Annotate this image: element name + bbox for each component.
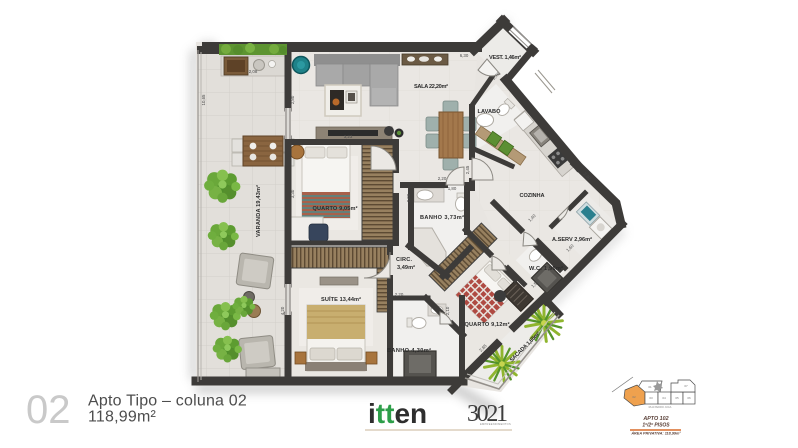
svg-text:BANHO 4,30m²: BANHO 4,30m² bbox=[387, 347, 431, 354]
svg-text:2,08: 2,08 bbox=[406, 193, 411, 202]
svg-text:VEST. 1,46m²: VEST. 1,46m² bbox=[489, 54, 521, 61]
svg-text:SALA 22,20m²: SALA 22,20m² bbox=[414, 83, 448, 90]
svg-text:2,10: 2,10 bbox=[445, 306, 450, 315]
svg-text:APTO 102: APTO 102 bbox=[642, 416, 668, 422]
svg-text:EMPREENDIMENTOS: EMPREENDIMENTOS bbox=[480, 422, 511, 426]
svg-text:VARANDA 19,43m²: VARANDA 19,43m² bbox=[255, 185, 262, 237]
svg-text:4,20: 4,20 bbox=[280, 306, 285, 315]
svg-text:CIRC.: CIRC. bbox=[396, 257, 412, 263]
svg-text:03: 03 bbox=[649, 396, 653, 400]
svg-text:10,65: 10,65 bbox=[201, 94, 206, 106]
svg-text:04: 04 bbox=[662, 396, 666, 400]
svg-text:2,20: 2,20 bbox=[438, 176, 447, 181]
svg-text:LAVABO: LAVABO bbox=[478, 109, 502, 115]
svg-text:2,08: 2,08 bbox=[249, 69, 258, 74]
svg-text:A.SERV 2,96m²: A.SERV 2,96m² bbox=[552, 236, 592, 243]
svg-text:1,80: 1,80 bbox=[448, 186, 457, 191]
svg-text:BANHO 3,73m²: BANHO 3,73m² bbox=[420, 214, 464, 221]
svg-text:RUA PEDRO JUCA: RUA PEDRO JUCA bbox=[649, 405, 672, 409]
svg-text:05: 05 bbox=[675, 396, 679, 400]
svg-text:QUARTO 9,12m²: QUARTO 9,12m² bbox=[465, 321, 510, 328]
svg-text:02: 02 bbox=[26, 388, 71, 432]
svg-text:1º/2º PISOS: 1º/2º PISOS bbox=[642, 423, 670, 429]
svg-text:2,20: 2,20 bbox=[395, 292, 404, 297]
svg-text:ÁREA PRIVATIVA: 118,99m²: ÁREA PRIVATIVA: 118,99m² bbox=[630, 431, 681, 436]
svg-text:QUARTO 9,05m²: QUARTO 9,05m² bbox=[313, 205, 358, 212]
svg-text:3,23: 3,23 bbox=[344, 134, 353, 139]
svg-text:2,80: 2,80 bbox=[290, 95, 295, 104]
svg-text:01: 01 bbox=[648, 385, 652, 389]
svg-text:6,30: 6,30 bbox=[460, 53, 469, 58]
svg-text:itten: itten bbox=[368, 398, 427, 429]
svg-text:SUÍTE 13,44m²: SUÍTE 13,44m² bbox=[321, 295, 361, 303]
svg-text:06: 06 bbox=[687, 396, 691, 400]
svg-text:Apto Tipo – coluna 02: Apto Tipo – coluna 02 bbox=[88, 393, 247, 410]
svg-text:02: 02 bbox=[632, 395, 636, 399]
svg-text:3,49m²: 3,49m² bbox=[397, 264, 415, 271]
svg-text:W.C. 1,95m²: W.C. 1,95m² bbox=[529, 265, 563, 272]
svg-text:118,99m²: 118,99m² bbox=[88, 409, 156, 426]
svg-text:2,45: 2,45 bbox=[465, 165, 470, 174]
svg-text:07: 07 bbox=[684, 384, 688, 388]
svg-text:3,30: 3,30 bbox=[290, 189, 295, 198]
svg-text:COZINHA: COZINHA bbox=[520, 193, 545, 199]
